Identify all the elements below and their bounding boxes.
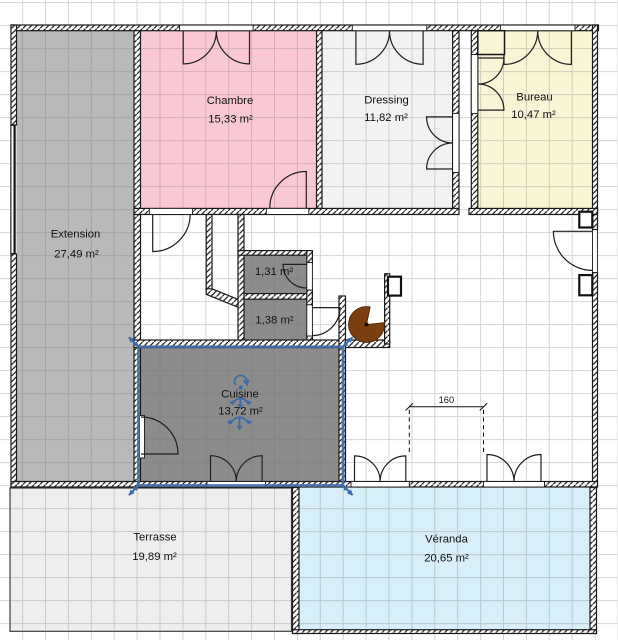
- svg-text:27,49 m²: 27,49 m²: [54, 249, 99, 261]
- svg-text:Cuisine: Cuisine: [221, 389, 259, 401]
- svg-text:1,31 m²: 1,31 m²: [255, 266, 294, 278]
- svg-text:11,82 m²: 11,82 m²: [364, 112, 408, 124]
- svg-text:20,65 m²: 20,65 m²: [424, 553, 469, 565]
- svg-text:Véranda: Véranda: [425, 534, 468, 546]
- svg-text:Extension: Extension: [51, 229, 101, 241]
- svg-text:15,33 m²: 15,33 m²: [208, 114, 253, 126]
- svg-text:13,72 m²: 13,72 m²: [218, 406, 263, 418]
- svg-text:Terrasse: Terrasse: [133, 532, 176, 544]
- svg-text:Bureau: Bureau: [516, 92, 552, 104]
- svg-text:19,89 m²: 19,89 m²: [132, 551, 177, 563]
- svg-text:160: 160: [439, 395, 455, 405]
- svg-text:1,38 m²: 1,38 m²: [255, 315, 294, 327]
- svg-text:10,47 m²: 10,47 m²: [511, 109, 556, 121]
- svg-text:Chambre: Chambre: [207, 95, 253, 107]
- svg-text:Dressing: Dressing: [364, 95, 409, 107]
